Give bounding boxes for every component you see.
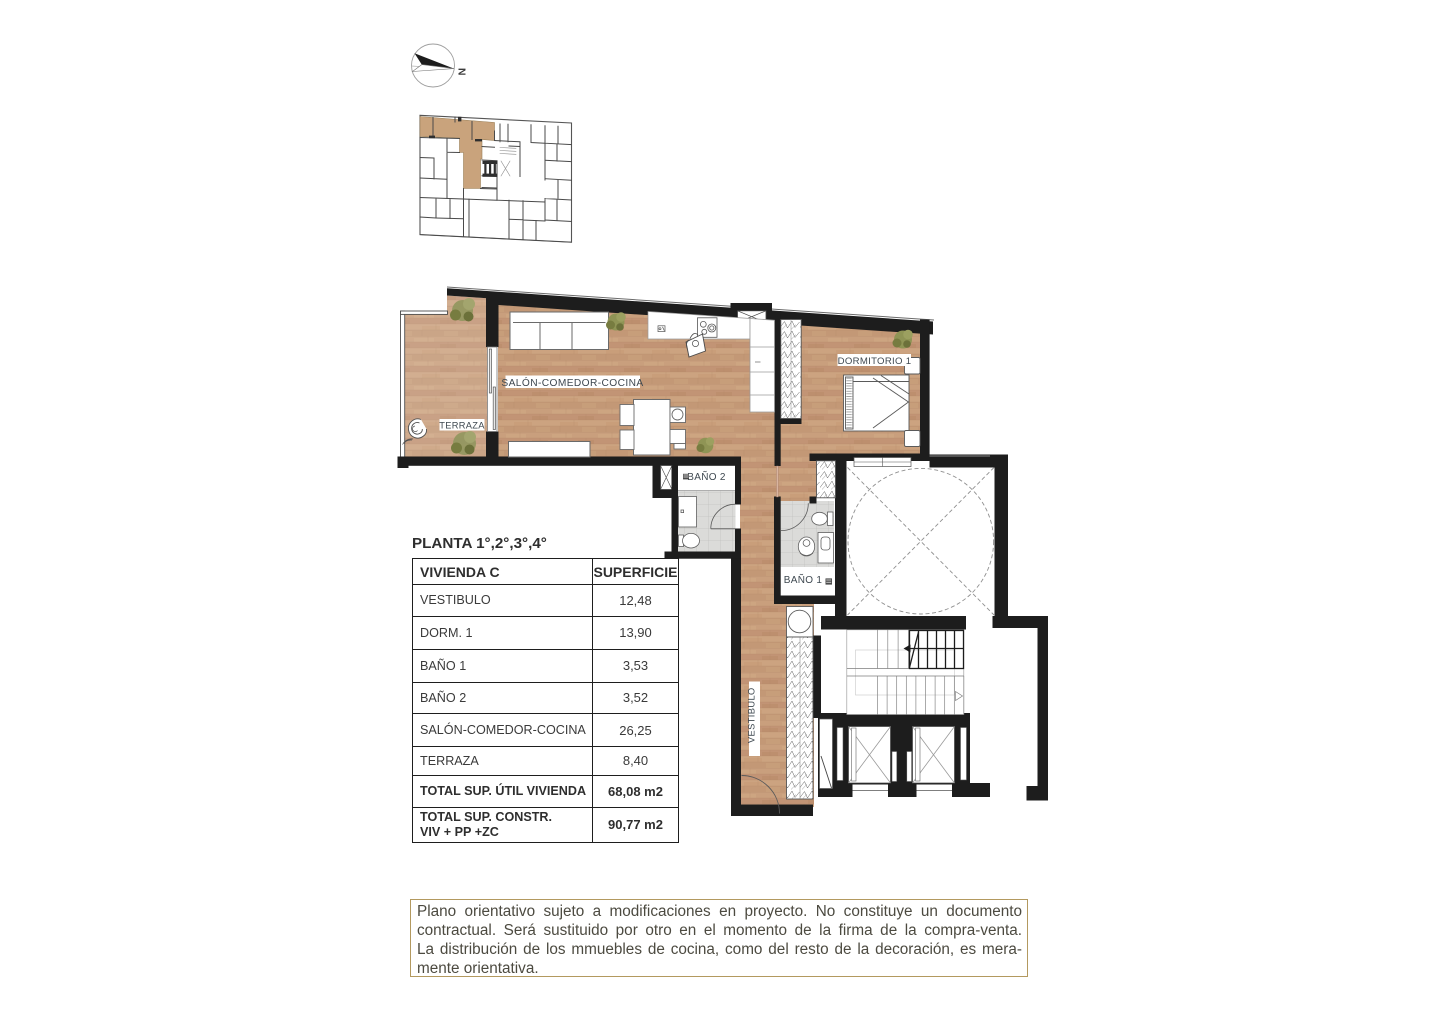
svg-text:SALÓN-COMEDOR-COCINA: SALÓN-COMEDOR-COCINA	[501, 376, 643, 389]
svg-text:N: N	[457, 68, 469, 76]
svg-text:VESTIBULO: VESTIBULO	[747, 687, 757, 743]
svg-text:BAÑO 2: BAÑO 2	[687, 470, 726, 483]
svg-text:DORMITORIO 1: DORMITORIO 1	[838, 356, 912, 367]
svg-text:TERRAZA: TERRAZA	[439, 421, 485, 431]
svg-text:BAÑO 1: BAÑO 1	[784, 573, 823, 586]
